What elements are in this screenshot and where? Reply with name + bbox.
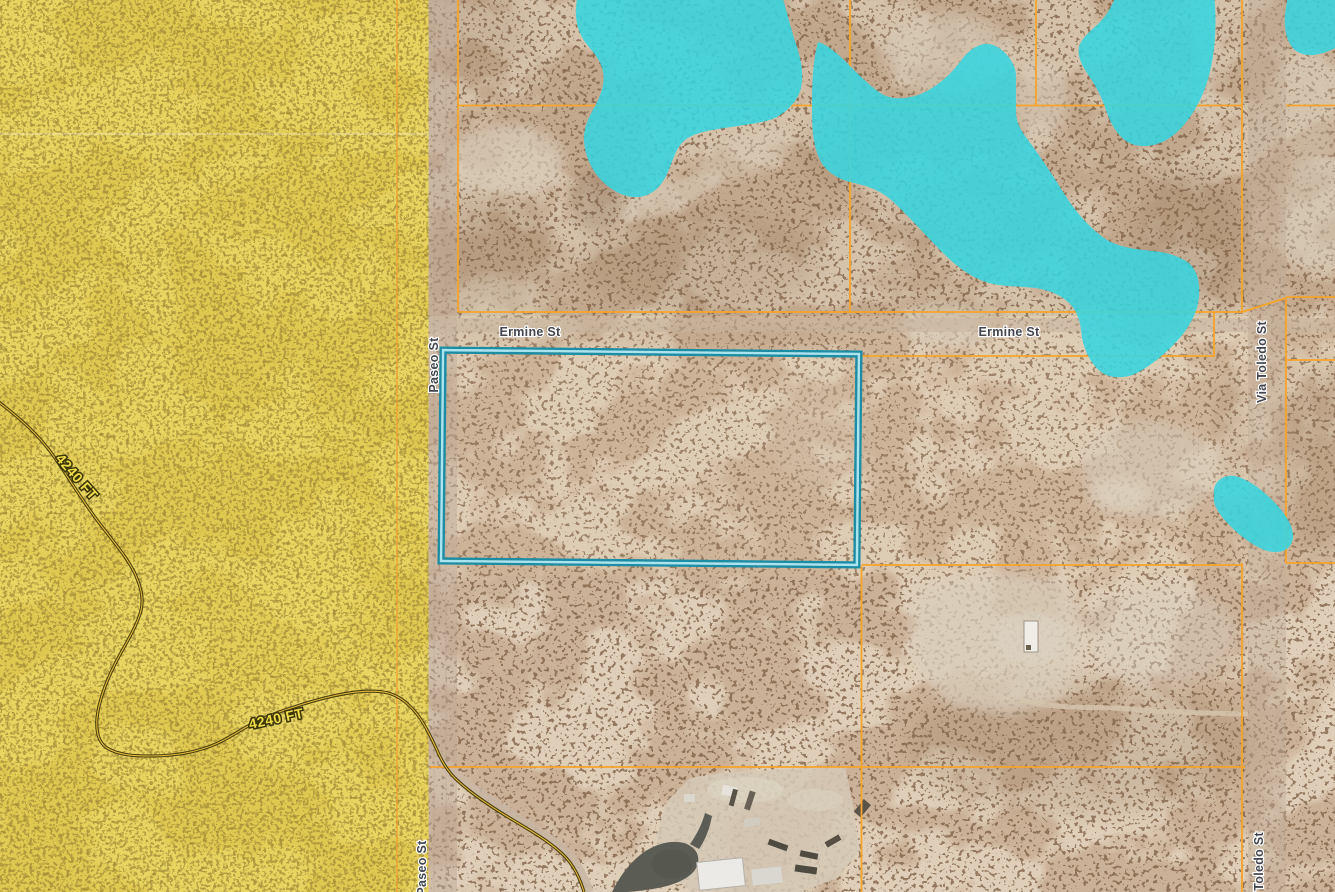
svg-text:Paseo St: Paseo St (415, 840, 429, 892)
svg-text:Ermine St: Ermine St (499, 325, 561, 339)
svg-text:Via Toledo St: Via Toledo St (1252, 832, 1266, 892)
svg-text:Via Toledo St: Via Toledo St (1255, 321, 1269, 403)
svg-text:Ermine St: Ermine St (978, 325, 1040, 339)
svg-text:Paseo St: Paseo St (427, 337, 441, 393)
